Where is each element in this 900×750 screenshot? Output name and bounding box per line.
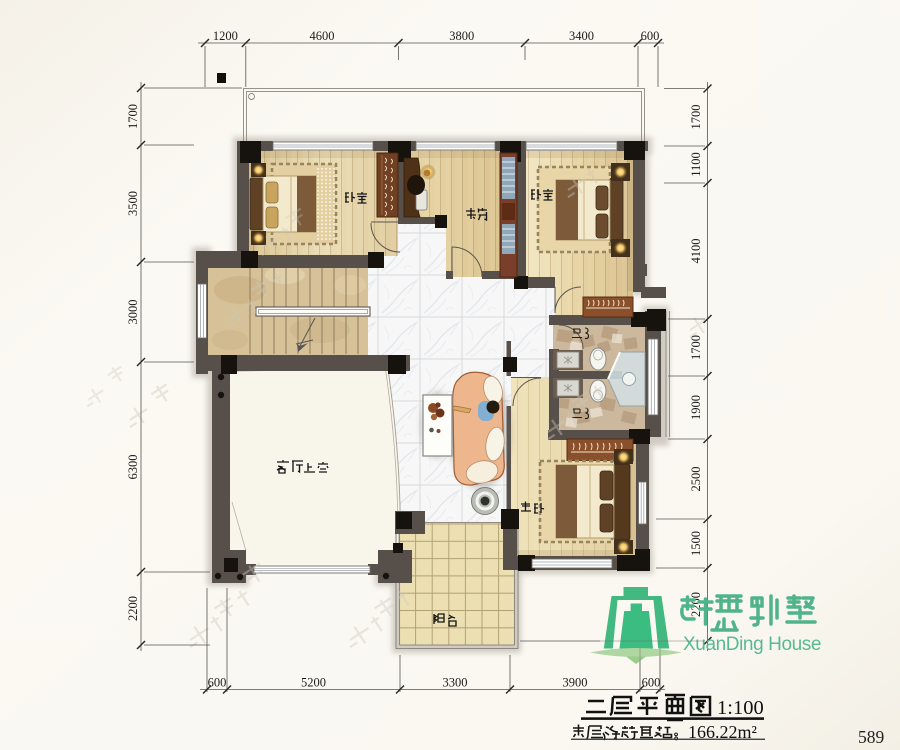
svg-text:1:100: 1:100 (717, 697, 764, 719)
svg-text:4600: 4600 (310, 29, 335, 43)
svg-text:600: 600 (641, 29, 660, 43)
svg-text:2200: 2200 (126, 596, 140, 621)
svg-text:3900: 3900 (563, 676, 588, 690)
svg-text:4100: 4100 (689, 239, 703, 264)
svg-text:1200: 1200 (213, 29, 238, 43)
svg-text:600: 600 (642, 676, 661, 690)
svg-text:3400: 3400 (569, 29, 594, 43)
svg-text:2500: 2500 (689, 467, 703, 492)
svg-text:1100: 1100 (689, 152, 703, 177)
svg-text:589: 589 (858, 727, 885, 747)
svg-text:3000: 3000 (126, 300, 140, 325)
svg-text:3500: 3500 (126, 191, 140, 216)
svg-text:600: 600 (208, 676, 227, 690)
svg-text:1900: 1900 (689, 395, 703, 420)
svg-text:XuanDing House: XuanDing House (683, 634, 821, 655)
svg-text:6300: 6300 (126, 455, 140, 480)
svg-text:5200: 5200 (301, 676, 326, 690)
svg-text:1700: 1700 (126, 104, 140, 129)
svg-text:1700: 1700 (689, 335, 703, 360)
svg-text:3300: 3300 (443, 676, 468, 690)
svg-text:3800: 3800 (449, 29, 474, 43)
svg-text:1500: 1500 (689, 531, 703, 556)
svg-text:1700: 1700 (689, 105, 703, 130)
